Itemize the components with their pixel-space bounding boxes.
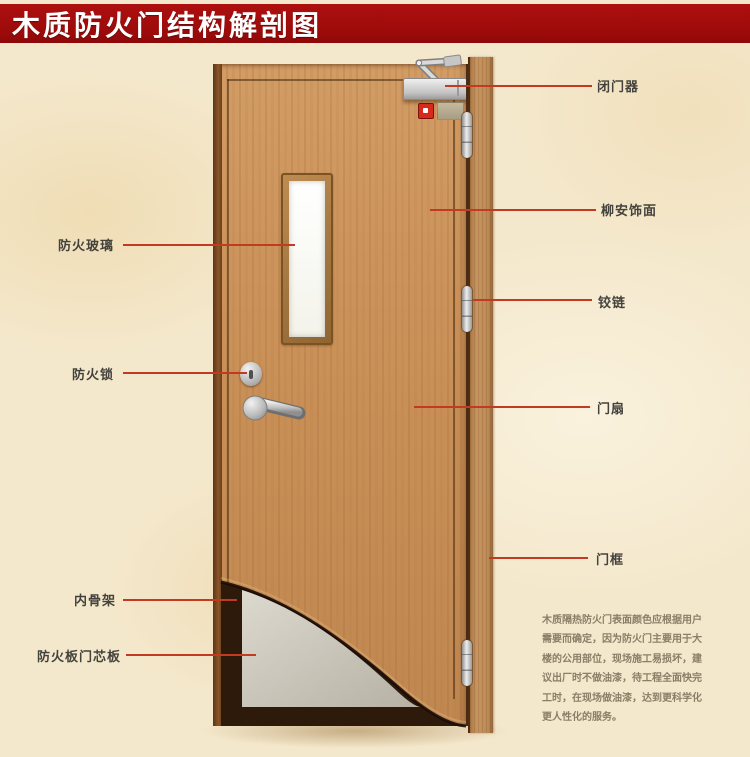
leader-door-leaf [414, 406, 590, 408]
hinge-bottom [462, 640, 472, 686]
door-seam [466, 64, 468, 726]
label-fire-core-board: 防火板门芯板 [37, 649, 121, 665]
leader-door-frame [489, 557, 588, 559]
nameplate [437, 102, 464, 120]
title-banner: 木质防火门结构解剖图 [0, 4, 750, 43]
leader-door-closer [445, 85, 592, 87]
label-fire-lock: 防火锁 [72, 367, 114, 383]
label-door-frame: 门框 [596, 552, 624, 568]
glass-pane [289, 181, 325, 337]
door-cutaway [213, 560, 470, 730]
label-door-closer: 闭门器 [597, 79, 639, 95]
description-text: 木质隔热防火门表面颜色应根据用户 需要而确定，因为防火门主要用于大 楼的公用部位… [542, 611, 737, 727]
label-door-leaf: 门扇 [597, 401, 625, 417]
label-lauan-veneer: 柳安饰面 [601, 203, 657, 219]
label-hinge: 铰链 [598, 295, 626, 311]
closer-mount-plate [443, 55, 461, 67]
leader-fire-lock [123, 372, 247, 374]
leader-lauan-veneer [430, 209, 596, 211]
fire-lock-cylinder [240, 362, 262, 386]
door-closer [403, 78, 467, 100]
leader-fire-core-board [126, 654, 256, 656]
leader-hinge [473, 299, 592, 301]
poster: 木质防火门结构解剖图 [0, 0, 750, 757]
door-handle [235, 392, 325, 430]
alarm-dot-icon [423, 108, 428, 113]
alarm-indicator [418, 103, 434, 119]
fire-glass-window [281, 173, 333, 345]
panel-groove-left [227, 79, 229, 582]
handle-rosette [243, 396, 267, 420]
leader-fire-glass [123, 244, 295, 246]
closer-end-cap [457, 80, 459, 96]
door-frame [468, 57, 493, 733]
hinge-top [462, 112, 472, 158]
closer-arm-joint [416, 60, 421, 65]
label-inner-skeleton: 内骨架 [74, 593, 116, 609]
fire-core-board [242, 590, 421, 707]
hinge-middle [462, 286, 472, 332]
label-fire-glass: 防火玻璃 [58, 238, 114, 254]
keyhole-icon [249, 370, 253, 379]
leader-inner-skeleton [123, 599, 237, 601]
page-title: 木质防火门结构解剖图 [0, 4, 322, 44]
